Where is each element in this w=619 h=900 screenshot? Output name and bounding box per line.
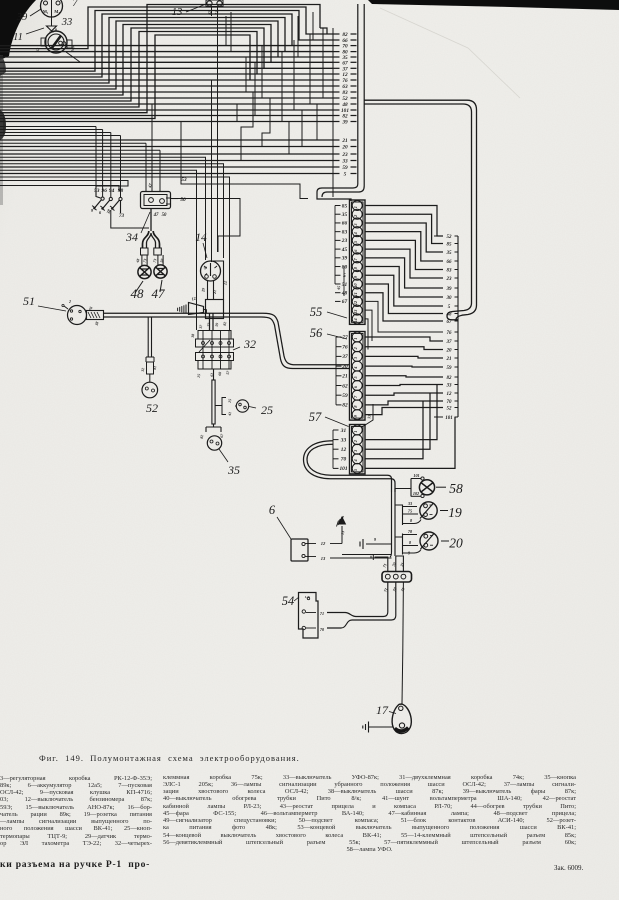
svg-text:56: 56: [310, 326, 323, 340]
svg-text:55: 55: [310, 305, 323, 319]
svg-text:48: 48: [446, 312, 453, 317]
svg-text:53: 53: [181, 177, 187, 183]
svg-text:57: 57: [309, 410, 322, 424]
svg-text:47: 47: [152, 286, 166, 301]
svg-text:71: 71: [320, 611, 324, 616]
svg-text:50: 50: [162, 213, 167, 218]
svg-text:48: 48: [131, 286, 145, 301]
svg-text:33: 33: [341, 159, 348, 165]
svg-text:29: 29: [200, 288, 205, 293]
svg-text:30: 30: [446, 296, 453, 301]
svg-text:39: 39: [446, 287, 453, 292]
svg-text:20: 20: [341, 145, 348, 151]
svg-text:12: 12: [321, 541, 326, 546]
svg-text:70: 70: [447, 400, 453, 405]
svg-text:59: 59: [342, 393, 348, 399]
svg-text:59: 59: [447, 366, 453, 371]
svg-text:39: 39: [16, 12, 28, 23]
svg-text:96: 96: [102, 188, 108, 194]
svg-text:33: 33: [340, 437, 347, 443]
svg-text:M₁: M₁: [43, 9, 49, 14]
svg-text:12: 12: [447, 392, 453, 397]
svg-text:11: 11: [353, 292, 358, 296]
svg-text:52: 52: [447, 235, 453, 240]
svg-text:52: 52: [146, 401, 158, 415]
svg-text:M₂: M₂: [54, 9, 60, 14]
svg-text:25: 25: [261, 403, 273, 417]
svg-text:62: 62: [36, 48, 41, 53]
svg-text:82: 82: [200, 435, 205, 440]
svg-text:45: 45: [341, 247, 348, 253]
svg-text:33: 33: [446, 383, 453, 388]
svg-text:23: 23: [446, 277, 453, 282]
svg-text:33: 33: [407, 501, 412, 506]
svg-text:58: 58: [449, 481, 463, 496]
svg-text:75: 75: [408, 509, 412, 514]
svg-text:1: 1: [353, 206, 358, 208]
svg-text:23: 23: [341, 152, 348, 158]
svg-text:6: 6: [269, 503, 276, 517]
svg-text:7: 7: [72, 0, 78, 9]
svg-text:21: 21: [212, 290, 217, 295]
svg-text:70: 70: [341, 457, 347, 463]
svg-text:54: 54: [282, 594, 295, 608]
svg-text:25: 25: [197, 374, 202, 380]
svg-text:12: 12: [214, 10, 220, 15]
svg-text:21: 21: [446, 357, 452, 362]
svg-text:85: 85: [447, 242, 453, 247]
svg-text:14: 14: [195, 232, 207, 244]
svg-text:83: 83: [342, 229, 348, 235]
svg-text:82: 82: [342, 403, 348, 409]
svg-text:39: 39: [341, 120, 348, 126]
svg-text:41: 41: [228, 412, 233, 418]
svg-text:31: 31: [340, 428, 347, 434]
svg-text:21: 21: [341, 374, 348, 380]
svg-text:13: 13: [172, 7, 183, 18]
svg-text:13: 13: [321, 556, 326, 561]
svg-text:62: 62: [342, 383, 348, 389]
svg-text:98: 98: [118, 188, 124, 194]
svg-text:35: 35: [341, 212, 348, 218]
svg-text:20: 20: [341, 364, 348, 370]
svg-text:37: 37: [446, 340, 453, 345]
svg-text:85: 85: [342, 203, 348, 209]
svg-text:52: 52: [447, 406, 453, 411]
svg-text:1: 1: [353, 431, 358, 433]
svg-text:82: 82: [207, 10, 213, 15]
svg-text:101: 101: [413, 473, 419, 478]
svg-text:83: 83: [447, 268, 453, 273]
svg-text:2: 2: [68, 300, 71, 304]
svg-text:35: 35: [227, 463, 240, 477]
svg-text:76: 76: [342, 345, 348, 351]
svg-text:21: 21: [341, 138, 348, 144]
svg-text:5: 5: [344, 172, 347, 178]
svg-text:45: 45: [336, 285, 342, 291]
svg-text:20: 20: [446, 348, 453, 353]
svg-text:67: 67: [342, 299, 348, 305]
svg-text:23: 23: [341, 238, 348, 244]
svg-text:59: 59: [215, 323, 220, 328]
svg-text:32: 32: [243, 337, 256, 351]
svg-text:102: 102: [413, 491, 419, 496]
svg-text:66: 66: [447, 260, 453, 265]
svg-text:59: 59: [342, 165, 348, 171]
svg-text:1: 1: [353, 338, 358, 340]
svg-text:33: 33: [61, 17, 73, 28]
svg-text:20: 20: [449, 536, 463, 551]
svg-text:51: 51: [23, 294, 35, 308]
svg-text:22: 22: [222, 281, 227, 287]
svg-text:19: 19: [448, 505, 462, 520]
svg-text:39: 39: [341, 256, 348, 262]
svg-text:51: 51: [342, 282, 348, 288]
svg-text:12: 12: [341, 447, 347, 453]
svg-text:38: 38: [191, 334, 196, 340]
svg-text:60: 60: [218, 372, 223, 377]
svg-text:53: 53: [94, 188, 100, 194]
svg-text:25: 25: [228, 399, 233, 405]
svg-text:35: 35: [446, 251, 453, 256]
svg-text:73: 73: [119, 214, 125, 219]
svg-text:11: 11: [13, 32, 23, 43]
svg-text:67: 67: [447, 320, 453, 325]
svg-text:50: 50: [180, 197, 186, 203]
svg-text:47: 47: [153, 213, 159, 218]
svg-text:13: 13: [340, 530, 346, 535]
svg-text:32: 32: [141, 368, 146, 374]
svg-text:94: 94: [109, 188, 115, 194]
svg-text:80: 80: [342, 264, 348, 270]
svg-text:34: 34: [125, 230, 138, 244]
svg-text:76: 76: [447, 331, 453, 336]
svg-text:101: 101: [339, 466, 347, 472]
svg-text:82: 82: [223, 322, 228, 327]
svg-text:101: 101: [445, 416, 453, 421]
svg-text:82: 82: [447, 376, 453, 381]
svg-text:17: 17: [376, 703, 389, 717]
svg-text:81: 81: [153, 366, 158, 371]
svg-text:66: 66: [342, 221, 348, 227]
svg-text:37: 37: [341, 354, 348, 360]
